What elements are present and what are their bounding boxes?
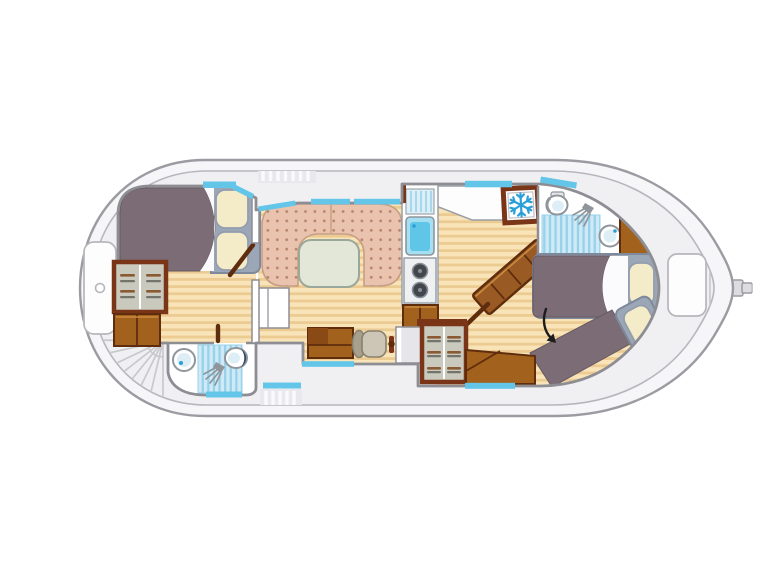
- bow-saloon-wall-lower: [252, 280, 259, 343]
- aft-shower-tray: [542, 215, 600, 259]
- helm-console: [396, 327, 422, 363]
- double-bed-blanket: [120, 188, 215, 271]
- aft-washbasin: [600, 226, 621, 247]
- saloon-table: [299, 240, 359, 287]
- window: [203, 182, 236, 189]
- stern-seat: [668, 254, 706, 316]
- rudder-blade: [742, 283, 752, 293]
- helm-bench: [308, 328, 353, 358]
- helm-wardrobe: [417, 319, 467, 382]
- draining-board: [406, 189, 434, 214]
- bow-wardrobe: [114, 262, 166, 312]
- helm-chair-seat: [362, 331, 386, 357]
- faucet-dot: [412, 224, 416, 228]
- steering-wheel: [388, 336, 394, 353]
- refrigerator: [503, 187, 539, 223]
- boat-floorplan-page: [0, 0, 768, 576]
- window: [465, 181, 512, 188]
- saloon-cabinet: [258, 288, 289, 328]
- window: [302, 361, 354, 367]
- window: [354, 199, 400, 205]
- stove: [404, 258, 436, 303]
- aft-cabinet: [466, 350, 535, 384]
- window: [311, 199, 350, 205]
- galley-sink: [406, 217, 434, 255]
- pillow: [216, 190, 248, 228]
- side-door: [263, 383, 301, 389]
- bow-locker: [84, 242, 116, 334]
- boat-floorplan: [0, 0, 768, 576]
- fwd-washbasin: [173, 349, 195, 371]
- window: [206, 392, 242, 398]
- fwd-toilet: [225, 348, 247, 368]
- pillow: [216, 232, 248, 270]
- bow-dresser: [114, 314, 160, 346]
- window: [465, 383, 515, 389]
